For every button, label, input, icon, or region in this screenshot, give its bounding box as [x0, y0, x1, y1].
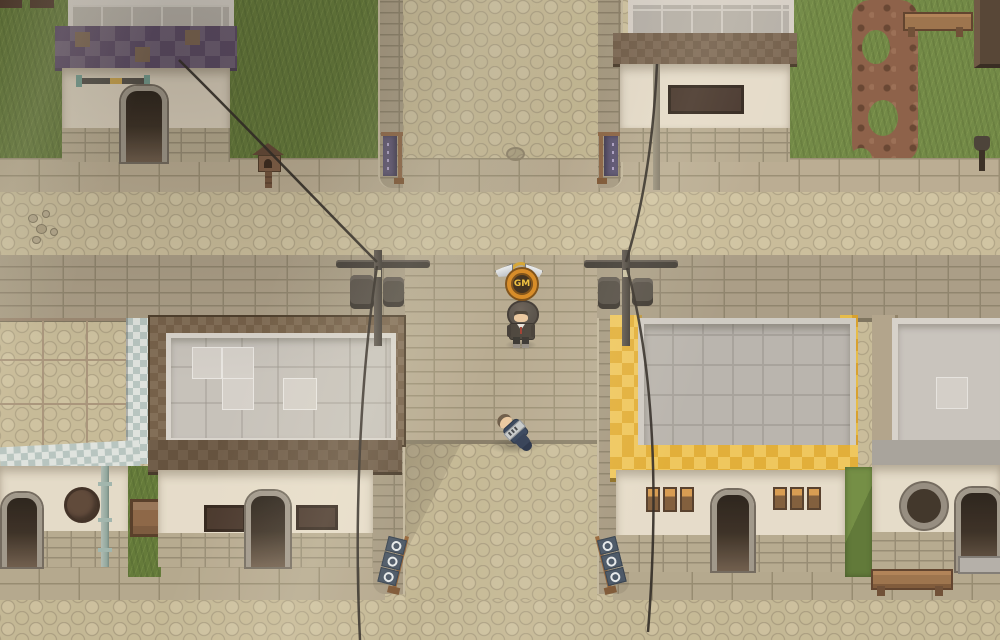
roof-patch	[185, 30, 200, 45]
transformer-barrel	[632, 278, 653, 306]
top-left-house-door[interactable]	[121, 86, 167, 162]
top-right-roof-corner	[974, 0, 1000, 68]
drainpipe-clamp	[98, 482, 112, 486]
purple-banner-left	[381, 132, 403, 184]
utility-pole-left	[334, 250, 434, 350]
bench-leg	[956, 27, 963, 37]
shop-yellow-window	[773, 487, 787, 510]
gm-shoe	[513, 344, 520, 348]
bench-bottom-right	[871, 566, 949, 596]
bench-leg	[877, 586, 885, 596]
dirt-path-grass-hole	[868, 100, 898, 136]
shop-yellow-window	[807, 487, 821, 510]
gm-face	[514, 314, 528, 322]
pole-insulator	[375, 270, 381, 277]
mid-center-house-door[interactable]	[246, 491, 290, 567]
utility-pole-right	[584, 250, 684, 350]
pole-mast	[374, 250, 382, 346]
staff-cap	[76, 75, 82, 87]
shop-yellow-window	[663, 487, 677, 512]
pole-mast	[622, 250, 630, 346]
hanging-sign-board	[668, 85, 744, 114]
gm-character[interactable]	[504, 298, 538, 348]
sidewalk-bottom-left	[0, 565, 385, 603]
roof-patch	[283, 378, 317, 410]
game-viewport: GM	[0, 0, 1000, 640]
shop-yellow-window	[790, 487, 804, 510]
roof-patch	[75, 32, 90, 47]
fallen-player-sprite	[492, 408, 538, 455]
gm-badge-ring: GM	[507, 269, 537, 299]
gm-tie	[520, 327, 522, 334]
drainpipe-clamp	[98, 548, 112, 552]
shovel-blade	[974, 136, 990, 151]
banner-pole	[398, 132, 402, 180]
roof-patch	[936, 377, 968, 409]
pebble	[28, 214, 38, 223]
bench-top-right	[903, 8, 969, 38]
drainpipe	[653, 64, 660, 190]
banner-foot	[394, 178, 404, 184]
fallen-player[interactable]	[482, 404, 546, 460]
roof-patch	[135, 47, 150, 62]
drainpipe-clamp	[98, 518, 112, 522]
pebble	[32, 236, 41, 244]
banner-foot	[597, 178, 607, 184]
door-step	[958, 556, 1000, 574]
pebble	[50, 228, 58, 236]
banner-cloth	[383, 136, 397, 176]
transformer-barrel	[383, 277, 404, 307]
birdhouse-hole	[264, 159, 272, 168]
pebble	[36, 224, 47, 234]
ivy-hedge	[845, 467, 873, 577]
transformer-barrel	[598, 277, 620, 309]
bench-leg	[935, 586, 943, 596]
banner-marks	[387, 140, 389, 170]
birdhouse-roof	[252, 143, 284, 155]
sidewalk-top	[0, 158, 1000, 195]
round-sign	[64, 487, 100, 523]
roof-patch	[222, 378, 254, 410]
top-center-house-wainscot	[620, 128, 790, 162]
pole-insulator	[623, 270, 629, 277]
top-center-house-roof-slope	[613, 33, 797, 67]
mid-left-house-roof	[0, 318, 130, 447]
shovel-handle	[979, 150, 985, 171]
roof-patch	[222, 347, 254, 379]
pebbles	[26, 210, 66, 246]
roof-bit	[30, 0, 54, 8]
round-window	[901, 483, 947, 529]
banner-marks	[612, 140, 614, 170]
birdhouse-post	[252, 143, 285, 188]
transformer-barrel	[350, 275, 374, 309]
pothole	[506, 147, 525, 161]
roof-patch	[192, 347, 222, 379]
birdhouse-pole	[265, 171, 272, 188]
bench-leg	[908, 27, 915, 37]
pole-crossarm	[336, 260, 430, 268]
staff-band	[110, 78, 122, 84]
banner-cloth	[604, 136, 618, 176]
dirt-path-grass-hole	[862, 30, 890, 64]
purple-banner-right	[598, 132, 620, 184]
road-bottom[interactable]	[0, 600, 1000, 640]
mid-center-house-window	[296, 505, 338, 530]
banner-pole	[599, 132, 603, 180]
shovel	[970, 136, 994, 172]
mid-center-house-window	[204, 505, 246, 532]
shop-yellow-door[interactable]	[712, 490, 754, 571]
gm-badge-label: GM	[511, 273, 533, 295]
pebble	[42, 210, 50, 218]
gm-shoe	[522, 344, 529, 348]
road-horizontal[interactable]	[0, 192, 1000, 255]
gm-arm	[507, 325, 511, 337]
gm-arm	[531, 325, 535, 337]
roof-bit	[0, 0, 22, 8]
shop-yellow-window	[646, 487, 660, 512]
shop-yellow-window	[680, 487, 694, 512]
gm-badge: GM	[495, 262, 541, 298]
flag-base	[387, 585, 400, 595]
mid-left-house-door[interactable]	[2, 493, 42, 567]
flag-base	[604, 585, 617, 595]
pole-crossarm	[584, 260, 678, 268]
